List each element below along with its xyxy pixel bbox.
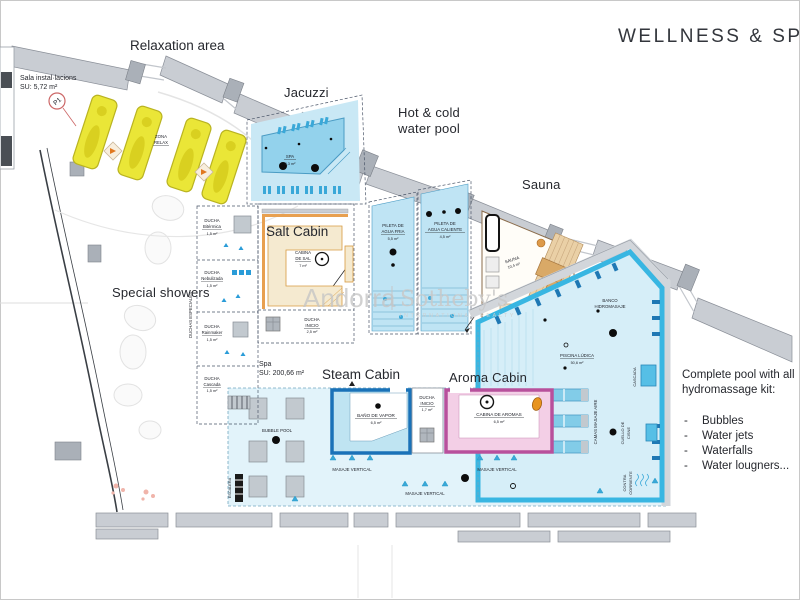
watermark-subtitle: INTERNATIONAL REALTY bbox=[400, 313, 516, 319]
ducha-mid-area: 1,7 m² bbox=[422, 408, 433, 412]
shower-1-label: DUCHA bbox=[204, 218, 219, 223]
heading-aroma-cabin: Aroma Cabin bbox=[449, 370, 527, 385]
masaje-label-3: MASAJE VERTICAL bbox=[477, 467, 517, 472]
pool-kit-item-3: Waterfalls bbox=[702, 445, 753, 457]
shower-4-name: Cascada bbox=[204, 382, 222, 387]
shower-4-area: 1,5 m² bbox=[207, 389, 218, 393]
shower-3-label: DUCHA bbox=[204, 324, 219, 329]
pool-kit-item-1: Bubbles bbox=[702, 415, 744, 427]
ducha-inicio-mid-room: DUCHA INICIO 1,7 m² bbox=[412, 388, 443, 453]
masaje-label-2: MASAJE VERTICAL bbox=[405, 491, 445, 496]
floor-plan-canvas: ZONA RELAX P1 SPA 8,3 m² bbox=[0, 0, 800, 600]
spa-pool-label: SPA bbox=[286, 154, 294, 159]
pool-kit-dash-1: - bbox=[684, 415, 688, 427]
cuello-feature bbox=[646, 424, 657, 441]
heading-relaxation: Relaxation area bbox=[130, 38, 225, 53]
zona-relax-label-2: RELAX bbox=[154, 140, 168, 145]
heading-steam-cabin: Steam Cabin bbox=[322, 367, 400, 382]
ducha-mid-label-2: INICIO bbox=[420, 401, 434, 406]
escalera-label: ESCALERA bbox=[228, 477, 232, 498]
masaje-label-1: MASAJE VERTICAL bbox=[332, 467, 372, 472]
cuello-label-1: CUELLO DE bbox=[620, 421, 625, 444]
sala-line2: SU: 5,72 m² bbox=[20, 84, 58, 91]
cabina-sal-label-2: DE SAL bbox=[295, 256, 311, 261]
pileta-fria-line2: AGUA FRIA bbox=[382, 229, 405, 234]
contra-label-1: CONTRA bbox=[622, 474, 627, 491]
cascada-feature bbox=[641, 365, 656, 386]
pileta-caliente-area: 4,5 m² bbox=[440, 235, 451, 239]
zona-relax-label-1: ZONA bbox=[155, 134, 167, 139]
shower-1-area: 1,5 m² bbox=[207, 232, 218, 236]
cabina-aromas-area: 6,5 m² bbox=[494, 420, 505, 424]
escalera-ladder bbox=[235, 474, 243, 502]
heading-special-showers: Special showers bbox=[112, 285, 210, 300]
heading-hot-cold-2: water pool bbox=[397, 121, 460, 136]
watermark-brand-left: Andorra bbox=[303, 283, 396, 313]
ducha-salt-area: 2,5 m² bbox=[307, 330, 318, 334]
ducha-salt-label-1: DUCHA bbox=[304, 317, 319, 322]
cascada-label: CASCADA bbox=[632, 367, 637, 387]
cabina-aromas-label: CABINA DE AROMAS bbox=[476, 412, 521, 417]
pool-kit-dash-3: - bbox=[684, 445, 688, 457]
pool-kit-item-4: Water lougners... bbox=[702, 460, 789, 472]
heading-salt-cabin: Salt Cabin bbox=[266, 224, 328, 239]
spa-area-line1: Spa bbox=[259, 361, 272, 368]
heading-jacuzzi: Jacuzzi bbox=[284, 85, 329, 100]
ducha-salt-label-2: INICIO bbox=[305, 323, 319, 328]
spa-pool-area: 8,3 m² bbox=[285, 162, 296, 166]
bubble-pool-label: BUBBLE POOL bbox=[262, 428, 293, 433]
pool-kit-line1: Complete pool with all bbox=[682, 369, 795, 381]
salt-door bbox=[345, 246, 353, 282]
pool-kit-dash-2: - bbox=[684, 430, 688, 442]
ducha-mid-label-1: DUCHA bbox=[419, 395, 434, 400]
shower-3-name: Rainmaker bbox=[202, 330, 223, 335]
bano-vapor-area: 6,5 m² bbox=[371, 421, 382, 425]
pool-kit-dash-4: - bbox=[684, 460, 688, 472]
shower-2-label: DUCHA bbox=[204, 270, 219, 275]
sauna-stove-icon bbox=[537, 239, 545, 247]
pileta-caliente-line2: AGUA CALIENTE bbox=[428, 227, 462, 232]
piscina-label: PISCINA LÚDICA bbox=[560, 353, 594, 358]
pool-kit-item-2: Water jets bbox=[702, 430, 754, 442]
watermark-brand-right: Sotheby's bbox=[400, 287, 508, 312]
heading-hot-cold-1: Hot & cold bbox=[398, 105, 460, 120]
pileta-caliente-line1: PILETA DE bbox=[434, 221, 456, 226]
cabina-sal-label-1: CABINA bbox=[295, 250, 311, 255]
steam-cabin-room: BAÑO DE VAPOR 6,5 m² bbox=[332, 381, 410, 453]
cuello-label-2: CISNE bbox=[626, 427, 631, 440]
banco-label-2: HIDROMASAJE bbox=[594, 304, 625, 309]
shower-1-name: Bitérmica bbox=[203, 224, 222, 229]
banco-label-1: BANCO bbox=[602, 298, 618, 303]
sauna-heater bbox=[486, 215, 499, 251]
bano-vapor-label: BAÑO DE VAPOR bbox=[357, 412, 395, 418]
shower-3-area: 1,5 m² bbox=[207, 338, 218, 342]
shower-2-name: Nebulizada bbox=[201, 276, 223, 281]
shower-4-label: DUCHA bbox=[204, 376, 219, 381]
floor-plan-page: ZONA RELAX P1 SPA 8,3 m² bbox=[0, 0, 800, 600]
piscina-area: 50,6 m² bbox=[571, 361, 585, 365]
spa-area-line2: SU: 200,66 m² bbox=[259, 370, 305, 377]
contra-label-2: CORRIENTE bbox=[628, 471, 633, 495]
heading-sauna: Sauna bbox=[522, 177, 561, 192]
aroma-cabin-room: CABINA DE AROMAS 6,5 m² bbox=[446, 385, 552, 452]
cabina-sal-area: 7 m² bbox=[299, 264, 307, 268]
pool-kit-line2: hydromassage kit: bbox=[682, 384, 775, 396]
pileta-fria-line1: PILETA DE bbox=[382, 223, 404, 228]
camas-label: CAMAS MASAJE AIRE bbox=[593, 400, 598, 445]
page-title: WELLNESS & SPA bbox=[618, 26, 800, 47]
sala-line1: Sala instal·lacions bbox=[20, 75, 77, 82]
pileta-fria-area: 5,5 m² bbox=[388, 237, 399, 241]
